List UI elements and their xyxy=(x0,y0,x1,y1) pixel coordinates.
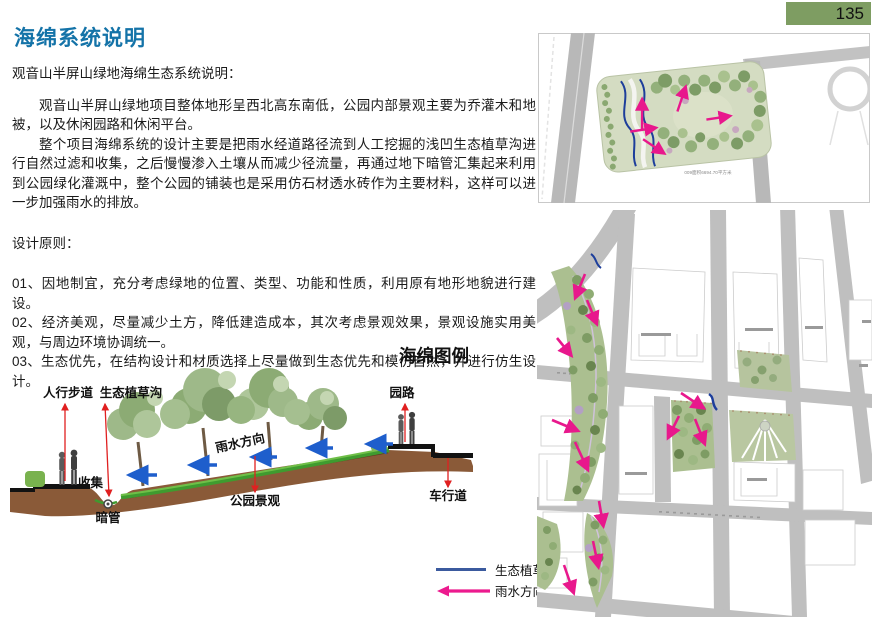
label-rain-direction: 雨水方向 xyxy=(214,430,266,455)
document-page: 135 海绵系统说明 观音山半屏山绿地海绵生态系统说明： 观音山半屏山绿地项目整… xyxy=(0,0,872,617)
bottom-site-plan xyxy=(537,210,872,617)
page-title: 海绵系统说明 xyxy=(14,22,146,52)
intro-line: 观音山半屏山绿地海绵生态系统说明： xyxy=(12,64,536,84)
label-collect: 收集 xyxy=(78,475,104,490)
label-walkway: 人行步道 xyxy=(43,385,94,400)
parcel-area-caption: 009面积6694.70平方米 xyxy=(684,169,732,176)
sponge-section-diagram: 人行步道 生态植草沟 收集 暗管 雨水方向 公园景观 园路 车行道 xyxy=(5,340,475,540)
amphitheater-stage xyxy=(760,421,770,431)
pedestrians-right xyxy=(398,412,415,444)
page-number-badge: 135 xyxy=(786,2,871,25)
rain-direction-arrow-icon xyxy=(436,584,495,598)
label-vehicle-road: 车行道 xyxy=(429,488,467,503)
top-site-plan: 009面积6694.70平方米 xyxy=(538,33,870,203)
park-parcel xyxy=(595,60,772,173)
pipe-symbol-core xyxy=(107,503,110,506)
pedestrians-left xyxy=(59,450,78,485)
bush xyxy=(25,471,45,487)
principles-heading: 设计原则： xyxy=(12,234,536,254)
swale-line-swatch xyxy=(436,568,486,571)
label-park-road: 园路 xyxy=(389,385,415,400)
label-park-view: 公园景观 xyxy=(230,494,281,508)
paragraph-2: 整个项目海绵系统的设计主要是把雨水经道路径流到人工挖掘的浅凹生态植草沟进行自然过… xyxy=(12,135,536,213)
principle-item: 01、因地制宜，充分考虑绿地的位置、类型、功能和性质，利用原有地形地貌进行建设。 xyxy=(12,274,536,313)
paragraph-1: 观音山半屏山绿地项目整体地形呈西北高东南低，公园内部景观主要为乔灌木和地被，以及… xyxy=(12,96,536,135)
label-swale: 生态植草沟 xyxy=(100,385,163,400)
label-pipe: 暗管 xyxy=(95,510,120,525)
